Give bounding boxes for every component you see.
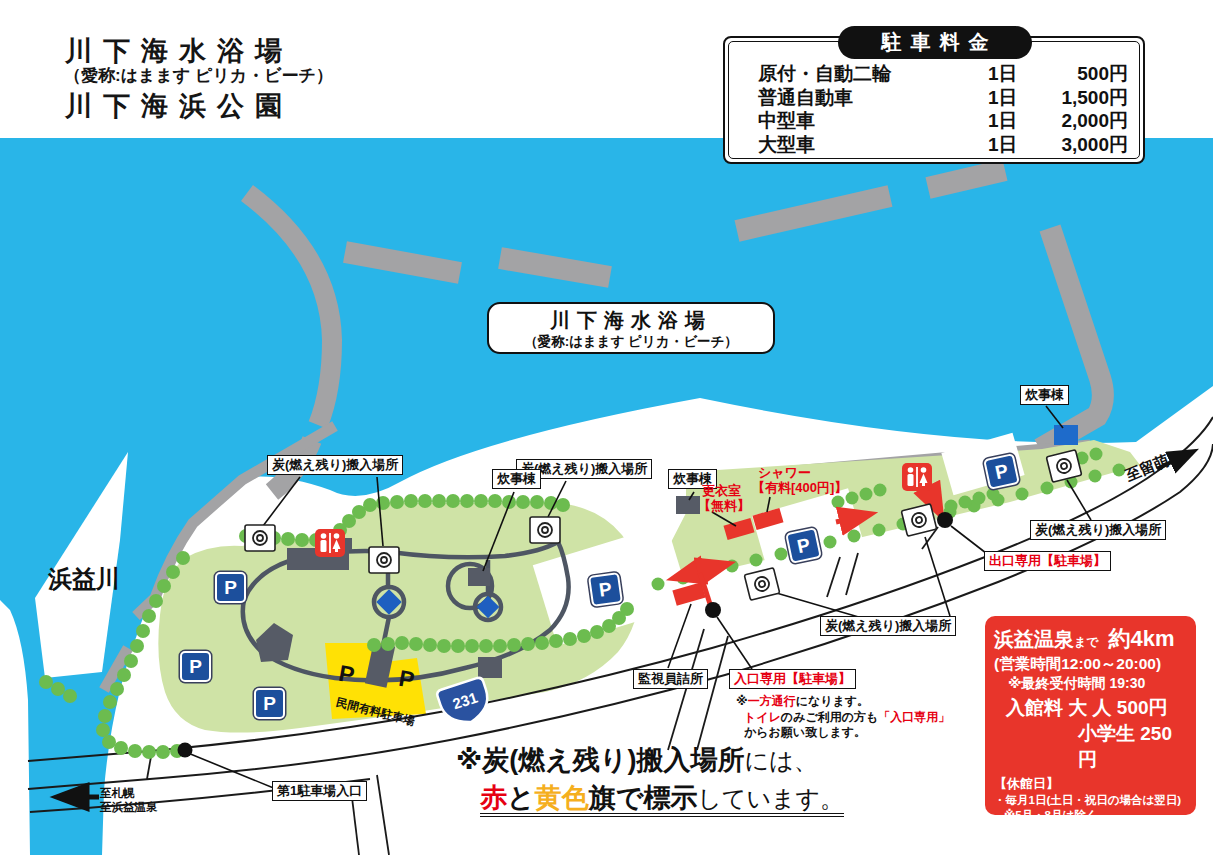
vehicle-type: 中型車	[758, 109, 988, 133]
parking-lot1-label: 第1駐車場入口	[272, 781, 367, 801]
to-sapporo-label: 至札幌	[100, 787, 135, 800]
parking-icon-6: P	[983, 453, 1020, 490]
fee-unit: 1日	[988, 109, 1034, 133]
cooking-label-1: 炊事棟	[492, 469, 541, 489]
table-row: 普通自動車 1日 1,500円	[758, 86, 1128, 110]
entrance-only-label: 入口専用【駐車場】	[729, 669, 856, 689]
note-entrance-only: 「入口専用」	[878, 710, 950, 724]
fee-price: 500円	[1034, 62, 1128, 86]
onsen-made: まで	[1074, 634, 1099, 651]
onsen-distance: 約4km	[1109, 624, 1175, 654]
fee-price: 3,000円	[1034, 133, 1128, 157]
fee-unit: 1日	[988, 133, 1034, 157]
parking-fee-header: 駐車料金	[838, 26, 1032, 59]
guard-station-label: 監視員詰所	[633, 669, 708, 689]
parking-fee-table: 駐車料金 原付・自動二輪 1日 500円 普通自動車 1日 1,500円 中型車…	[723, 36, 1145, 164]
exit-only-label: 出口専用【駐車場】	[984, 551, 1111, 571]
notice-tail2: しています。	[697, 785, 844, 812]
notice-bold: ※炭(燃え残り)搬入場所	[456, 745, 745, 775]
notice-yellow-word: 黄色	[535, 783, 589, 813]
cooking-building-2	[676, 496, 700, 514]
page-title-line3: 川下海浜公園	[65, 88, 293, 124]
note-toilet: トイレ	[744, 710, 781, 724]
vehicle-type: 大型車	[758, 133, 988, 157]
table-row: 中型車 1日 2,000円	[758, 109, 1128, 133]
changing-line2: 【無料】	[698, 499, 750, 514]
beach-name-line1: 川下海水浴場	[489, 307, 773, 334]
vehicle-type: 普通自動車	[758, 86, 988, 110]
charcoal-notice-line2: 赤と黄色旗で標示しています。	[480, 780, 844, 816]
parking-icon-3: P	[254, 688, 285, 719]
notice-bold2: 旗で標示	[589, 783, 698, 813]
parking-icon-1: P	[215, 572, 246, 603]
charcoal-label-4: 炭(燃え残り)搬入場所	[820, 616, 956, 636]
entrance-note: ※一方通行になります。 トイレのみご利用の方も「入口専用」 からお願い致します。	[736, 694, 950, 741]
note-oneway: 一方通行	[748, 694, 796, 708]
note-l2-mid: のみご利用の方も	[781, 710, 878, 724]
parking-icon-2: P	[180, 651, 211, 682]
cooking-label-3: 炊事棟	[1020, 385, 1069, 405]
onsen-last-entry: ※最終受付時間 19:30	[994, 675, 1187, 693]
beach-name-label: 川下海水浴場 （愛称:はまます ピリカ・ビーチ）	[487, 302, 775, 354]
onsen-closed-2: ・毎週火曜日	[994, 823, 1187, 838]
shower-line2: 【有料[400円]】	[752, 481, 847, 496]
onsen-fee-child: 小学生 250円	[994, 721, 1187, 773]
onsen-info-box: 浜益温泉 まで 約4km (営業時間12:00～20:00) ※最終受付時間 1…	[985, 616, 1196, 815]
cooking-building-3	[1054, 425, 1078, 445]
parking-icon-4: P	[588, 572, 623, 607]
note-mark: ※	[736, 694, 748, 708]
notice-mid: と	[507, 783, 535, 813]
river-label: 浜益川	[48, 563, 120, 595]
charcoal-label-1: 炭(燃え残り)搬入場所	[267, 455, 403, 475]
note-l1-tail: になります。	[796, 694, 869, 708]
table-row: 原付・自動二輪 1日 500円	[758, 62, 1128, 86]
charcoal-notice-line1: ※炭(燃え残り)搬入場所には、	[456, 742, 818, 778]
onsen-closed-1-note: ※5月・8月は除く	[994, 808, 1187, 823]
onsen-name: 浜益温泉	[994, 626, 1074, 653]
note-l3: からお願い致します。	[736, 725, 950, 741]
fee-price: 2,000円	[1034, 109, 1128, 133]
page-title-line2: （愛称:はまます ピリカ・ビーチ）	[64, 64, 333, 87]
fee-unit: 1日	[988, 62, 1034, 86]
onsen-hours: (営業時間12:00～20:00)	[994, 654, 1187, 675]
notice-red-word: 赤	[480, 783, 507, 813]
shower-line1: シャワー	[752, 466, 847, 481]
onsen-direction: ENEOS・GS信号左折	[994, 841, 1187, 855]
parking-icon-5: P	[785, 527, 822, 564]
onsen-closed-header: 【休館日】	[994, 775, 1187, 793]
to-onsen-label: 至浜益温泉	[100, 801, 158, 814]
beach-park-map: 川下海水浴場 （愛称:はまます ピリカ・ビーチ） 川下海浜公園 駐車料金 原付・…	[0, 0, 1213, 855]
beach-name-line2: （愛称:はまます ピリカ・ビーチ）	[489, 333, 773, 351]
charcoal-label-3: 炭(燃え残り)搬入場所	[1030, 520, 1166, 540]
vehicle-type: 原付・自動二輪	[758, 62, 988, 86]
fee-unit: 1日	[988, 86, 1034, 110]
shower-label: シャワー 【有料[400円]】	[752, 466, 847, 495]
notice-tail: には、	[745, 747, 818, 774]
onsen-closed-1: ・毎月1日(土日・祝日の場合は翌日)	[994, 793, 1187, 808]
changing-line1: 更衣室	[698, 484, 750, 499]
cooking-building-1	[468, 568, 490, 586]
fee-price: 1,500円	[1034, 86, 1128, 110]
changing-room-label: 更衣室 【無料】	[698, 484, 750, 513]
table-row: 大型車 1日 3,000円	[758, 133, 1128, 157]
onsen-fee-adult: 入館料 大 人 500円	[994, 695, 1187, 721]
